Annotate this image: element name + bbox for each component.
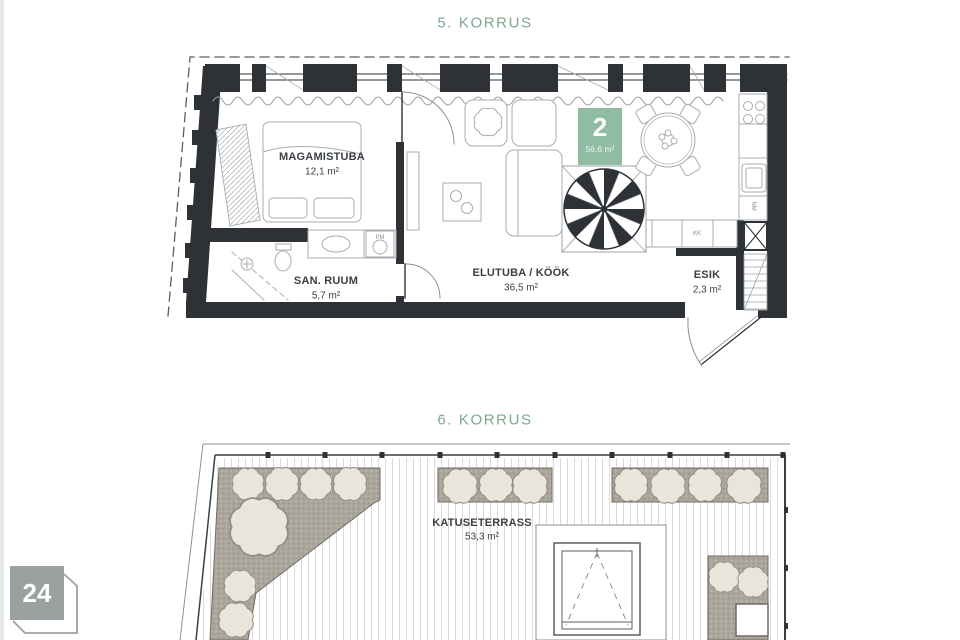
room-label-katuseterrass: KATUSETERRASS xyxy=(432,517,532,529)
armchair xyxy=(512,100,556,146)
room-label-esik: ESIK xyxy=(694,269,720,281)
room-label-elutuba: ELUTUBA / KÖÖK xyxy=(472,267,569,279)
fixture-label-nm: NM xyxy=(750,201,756,210)
floor5-title: 5. KORRUS xyxy=(437,15,532,32)
dining-table xyxy=(635,103,701,176)
floor5-plan xyxy=(168,57,789,366)
shaft-x xyxy=(744,222,767,250)
room-area-katuseterrass: 53,3 m² xyxy=(465,532,499,543)
skylight xyxy=(536,525,666,640)
pillow xyxy=(314,198,354,218)
bathroom-door-arc xyxy=(406,264,440,298)
sofa xyxy=(506,150,562,236)
page-number-badge: 24 xyxy=(10,566,64,620)
spiral-staircase xyxy=(562,166,646,252)
room-area-sanruum: 5,7 m² xyxy=(312,291,340,302)
sideboard xyxy=(407,152,419,230)
toilet-tank xyxy=(276,244,291,250)
toilet-bowl xyxy=(275,251,291,271)
entrance-door-arc xyxy=(688,318,702,366)
room-area-magamistuba: 12,1 m² xyxy=(305,167,339,178)
bath-sink xyxy=(322,236,350,252)
floor6-title: 6. KORRUS xyxy=(437,412,532,429)
room-area-elutuba: 36,5 m² xyxy=(504,283,538,294)
radiator xyxy=(216,124,260,226)
coffee-table xyxy=(443,183,481,221)
window-band xyxy=(206,66,787,90)
floorplan-drawing xyxy=(0,0,960,640)
room-label-sanruum: SAN. RUUM xyxy=(294,275,358,287)
unit-area: 56,6 m² xyxy=(578,144,622,154)
bedroom-door-arc xyxy=(402,92,454,144)
stair-treads xyxy=(744,254,767,310)
fixture-label-pm: PM xyxy=(376,235,385,241)
room-area-esik: 2,3 m² xyxy=(693,285,721,296)
unit-number-badge: 2 56,6 m² xyxy=(578,108,622,165)
floorplan-page: 5. KORRUS 2 56,6 m² MAGAMISTUBA 12,1 m² … xyxy=(0,0,960,640)
sofa-group xyxy=(443,100,562,236)
unit-number: 2 xyxy=(578,113,622,142)
page-number: 24 xyxy=(23,578,52,609)
planter-box xyxy=(736,604,768,636)
room-label-magamistuba: MAGAMISTUBA xyxy=(279,151,365,163)
pillow xyxy=(269,198,307,218)
fixture-label-kk: KK xyxy=(693,231,701,237)
